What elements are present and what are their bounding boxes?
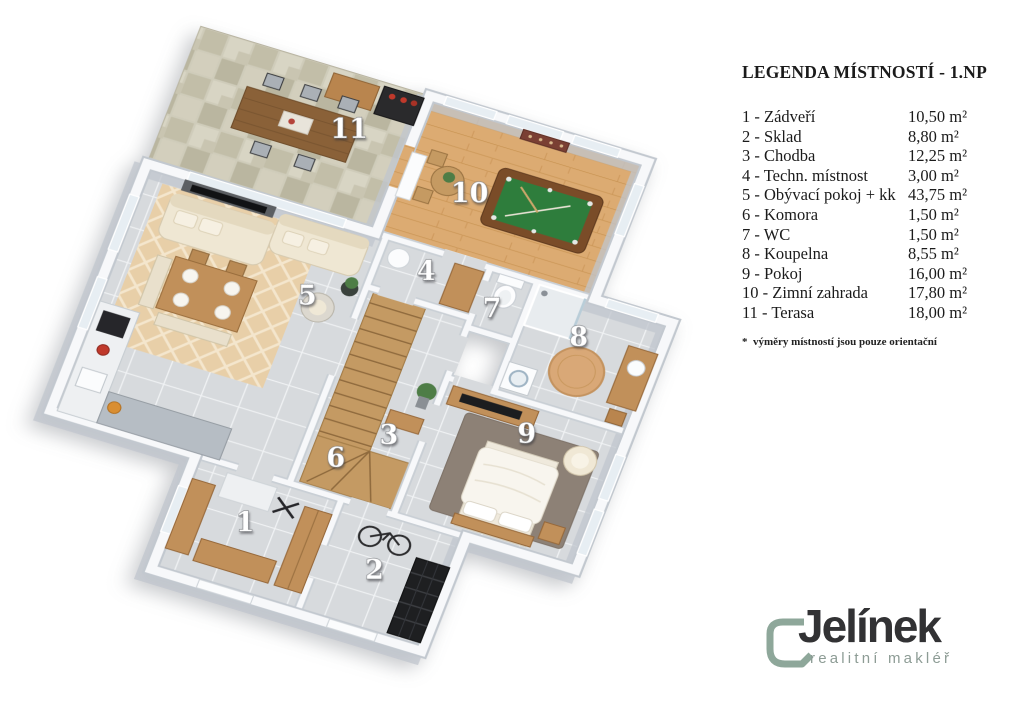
room-area: 10,50 m² [908,107,967,127]
room-label-6: 6 [326,443,345,474]
room-name: 3 - Chodba [742,146,908,166]
page: 1 2 3 4 5 6 7 8 9 10 11 LEGENDA MÍSTNOST… [0,0,1024,724]
room-area: 8,80 m² [908,127,959,147]
room-name: 11 - Terasa [742,303,908,323]
room-name: 9 - Pokoj [742,264,908,284]
room-area: 3,00 m² [908,166,959,186]
legend-row: 5 - Obývací pokoj + kk43,75 m² [742,185,992,205]
room-area: 18,00 m² [908,303,967,323]
legend-note: * výměry místností jsou pouze orientační [742,336,992,348]
room-legend: LEGENDA MÍSTNOSTÍ - 1.NP 1 - Zádveří10,5… [742,62,992,348]
room-label-10: 10 [451,178,489,209]
room-label-11: 11 [330,114,368,145]
legend-row: 2 - Sklad8,80 m² [742,127,992,147]
room-label-1: 1 [236,507,255,538]
legend-rows: 1 - Zádveří10,50 m² 2 - Sklad8,80 m² 3 -… [742,107,992,323]
room-label-9: 9 [517,419,536,450]
room-label-4: 4 [417,256,436,287]
room-area: 1,50 m² [908,225,959,245]
room-label-7: 7 [483,293,502,324]
room-name: 10 - Zimní zahrada [742,283,908,303]
room-area: 17,80 m² [908,283,967,303]
floor-plan: 1 2 3 4 5 6 7 8 9 10 11 [0,0,740,724]
legend-row: 6 - Komora1,50 m² [742,205,992,225]
room-area: 8,55 m² [908,244,959,264]
room-name: 4 - Techn. místnost [742,166,908,186]
room-name: 7 - WC [742,225,908,245]
room-area: 12,25 m² [908,146,967,166]
legend-row: 3 - Chodba12,25 m² [742,146,992,166]
room-area: 43,75 m² [908,185,967,205]
brand-logo: Jelínek realitní makléř [764,603,1009,683]
brand-name: Jelínek [798,601,940,651]
legend-row: 10 - Zimní zahrada17,80 m² [742,283,992,303]
room-name: 8 - Koupelna [742,244,908,264]
room-area: 1,50 m² [908,205,959,225]
legend-row: 9 - Pokoj16,00 m² [742,264,992,284]
room-label-3: 3 [379,420,398,451]
legend-title: LEGENDA MÍSTNOSTÍ - 1.NP [742,62,992,82]
room-name: 1 - Zádveří [742,107,908,127]
room-area: 16,00 m² [908,264,967,284]
room-label-8: 8 [569,322,588,353]
room-label-5: 5 [298,280,317,311]
legend-row: 11 - Terasa18,00 m² [742,303,992,323]
room-name: 6 - Komora [742,205,908,225]
brand-tagline: realitní makléř [810,650,952,667]
legend-row: 8 - Koupelna8,55 m² [742,244,992,264]
legend-row: 7 - WC1,50 m² [742,225,992,245]
legend-row: 1 - Zádveří10,50 m² [742,107,992,127]
room-label-2: 2 [365,555,384,586]
room-name: 2 - Sklad [742,127,908,147]
room-name: 5 - Obývací pokoj + kk [742,185,908,205]
legend-row: 4 - Techn. místnost3,00 m² [742,166,992,186]
